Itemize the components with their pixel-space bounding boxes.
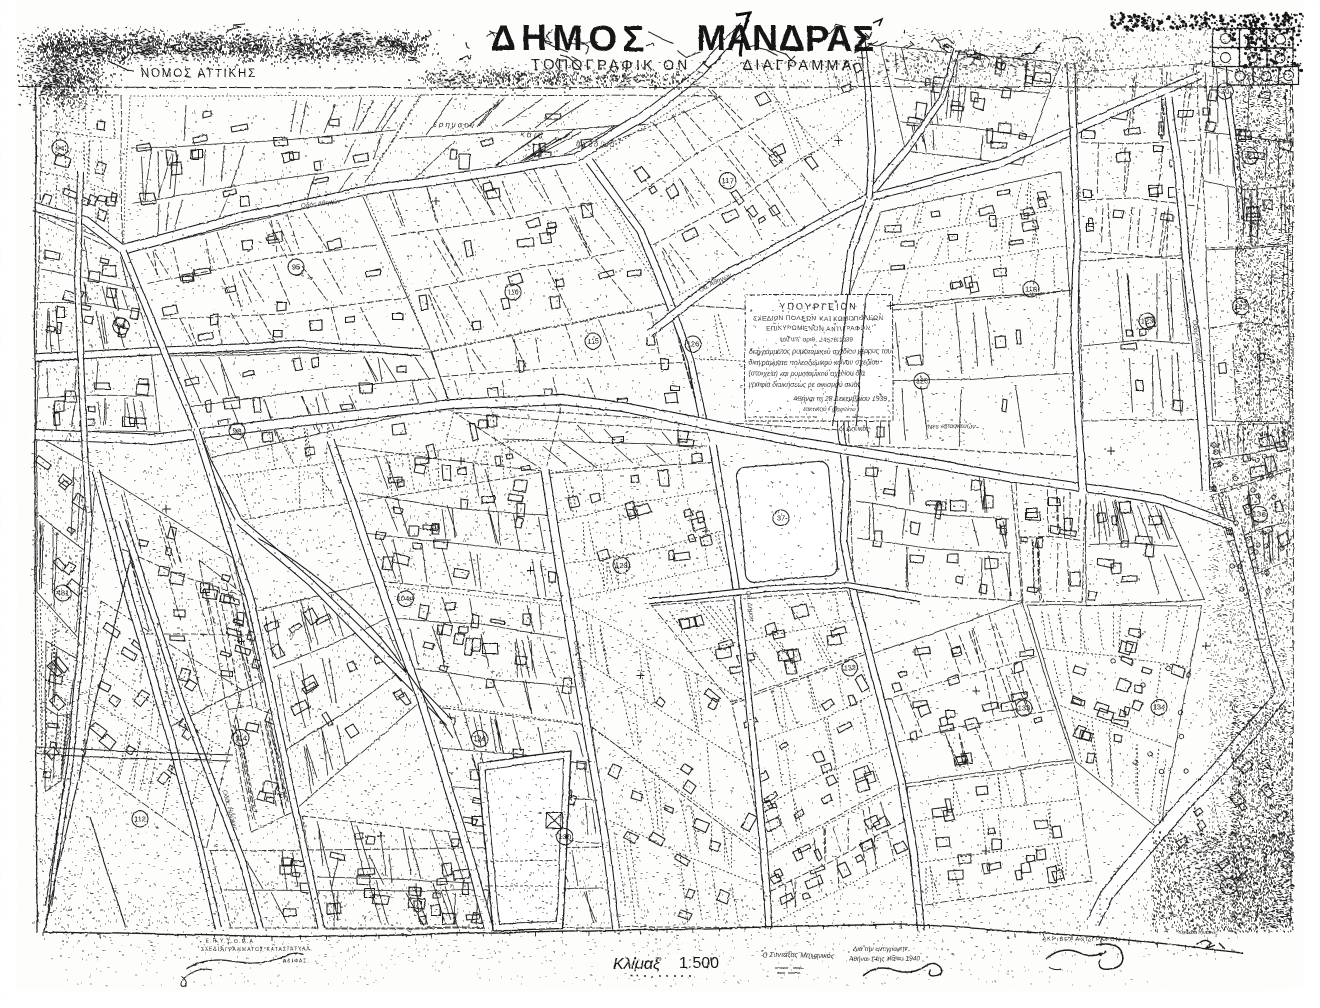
svg-text:121: 121: [1243, 151, 1256, 160]
svg-text:Οδός: Οδός: [1073, 185, 1082, 202]
svg-text:481: 481: [56, 588, 69, 597]
svg-text:95: 95: [292, 263, 300, 272]
svg-text:Ο Συντάξας Μηχανικός: Ο Συντάξας Μηχανικός: [762, 951, 834, 959]
svg-text:43: 43: [1224, 882, 1232, 891]
svg-text:κατά: κατά: [520, 129, 544, 139]
svg-text:118: 118: [1024, 284, 1036, 293]
svg-text:ΣΧΕΔΙΑΓΡΑΜΜΑΤΟΣ ΚΑΤΑΣΤΑΤΥΑΛ.: ΣΧΕΔΙΑΓΡΑΜΜΑΤΟΣ ΚΑΤΑΣΤΑΤΥΑΛ.: [200, 946, 313, 952]
svg-text:136: 136: [1252, 509, 1265, 518]
svg-text:96: 96: [116, 321, 124, 330]
svg-text:ισχύων πίνακας: ισχύων πίνακας: [1178, 928, 1217, 935]
svg-text:104Α: 104Α: [396, 594, 414, 603]
svg-text:126: 126: [686, 339, 699, 348]
svg-text:20: 20: [1220, 86, 1228, 95]
svg-text:37: 37: [776, 513, 784, 522]
svg-text:(στοιχεία) και ρυμοτομικού σχε: (στοιχεία) και ρυμοτομικού σχεδίου διά: [748, 369, 865, 377]
svg-text:123: 123: [1140, 316, 1153, 325]
svg-text:134: 134: [473, 734, 486, 743]
svg-text:128: 128: [614, 560, 627, 569]
svg-text:Ε.Π.Υ.Σ.Ο.Μ.Α: Ε.Π.Υ.Σ.Ο.Μ.Α: [205, 938, 253, 944]
svg-text:δ. Δούκας: δ. Δούκας: [838, 424, 869, 432]
svg-text:Αθήναι 14ης Μαϊου 1940: Αθήναι 14ης Μαϊου 1940: [847, 955, 920, 962]
svg-text:διαγράμματα πολεοδομικού καίνο: διαγράμματα πολεοδομικού καίνου σχεδίου: [748, 358, 879, 366]
svg-text:130: 130: [558, 832, 571, 841]
svg-text:133: 133: [1018, 704, 1031, 713]
svg-text:ΑΦΙΦΑΣ.: ΑΦΙΦΑΣ.: [282, 958, 309, 964]
svg-text:117: 117: [721, 176, 733, 185]
svg-text:94: 94: [55, 143, 63, 152]
svg-text:διαγράμματος ρυμοτομικού σχεδί: διαγράμματος ρυμοτομικού σχεδίου μέρους …: [748, 347, 891, 355]
svg-text:ΕΠΙΚΥΡΩΜΕΝΟΝ ΑΝΤΙΓΡΑΦΟΝ: ΕΠΙΚΥΡΩΜΕΝΟΝ ΑΝΤΙΓΡΑΦΟΝ: [766, 325, 871, 332]
svg-text:ΤΟΠΟΓΡΑΦΙΚ ΟΝ: ΤΟΠΟΓΡΑΦΙΚ ΟΝ: [531, 57, 690, 73]
svg-text:ΝΟΜΟΣ ΑΤΤΙΚΗΣ: ΝΟΜΟΣ ΑΤΤΙΚΗΣ: [140, 67, 256, 79]
svg-text:άνευ κατασκευών: άνευ κατασκευών: [925, 422, 976, 430]
svg-text:ΑΚΡΙΒΕΣ ΑΝΤΙΓΡΑΦΟΝ: ΑΚΡΙΒΕΣ ΑΝΤΙΓΡΑΦΟΝ: [1042, 936, 1119, 942]
svg-text:134: 134: [1152, 702, 1165, 711]
svg-text:ΔΙΑΓΡΑΜΜΑ: ΔΙΑΓΡΑΜΜΑ: [742, 57, 853, 73]
svg-text:98: 98: [232, 426, 240, 435]
svg-text:Κλίμαξ: Κλίμαξ: [612, 955, 660, 972]
svg-text:ΔΗΜΟΣ: ΔΗΜΟΣ: [490, 17, 650, 58]
svg-text:115: 115: [586, 336, 598, 345]
svg-text:122: 122: [1234, 302, 1247, 311]
svg-text:γραφία διοικήσεως με οικισμού: γραφία διοικήσεως με οικισμού σκιάς: [748, 380, 861, 388]
svg-text:116: 116: [506, 287, 518, 296]
svg-text:τακτικού Γραφείου: τακτικού Γραφείου: [802, 404, 855, 412]
svg-text:ΜΑΝΔΡΑΣ: ΜΑΝΔΡΑΣ: [696, 17, 880, 58]
svg-text:Αθήναι τη 28 Δεκεμβρίου 1939: Αθήναι τη 28 Δεκεμβρίου 1939: [791, 394, 886, 402]
svg-text:Διά τήν αντιγραφήν: Διά τήν αντιγραφήν: [851, 944, 908, 952]
svg-text:132: 132: [843, 663, 856, 672]
svg-text:112: 112: [133, 814, 145, 823]
svg-text:114: 114: [234, 733, 246, 742]
svg-text:1:500: 1:500: [678, 954, 718, 971]
svg-text:125: 125: [915, 376, 928, 385]
